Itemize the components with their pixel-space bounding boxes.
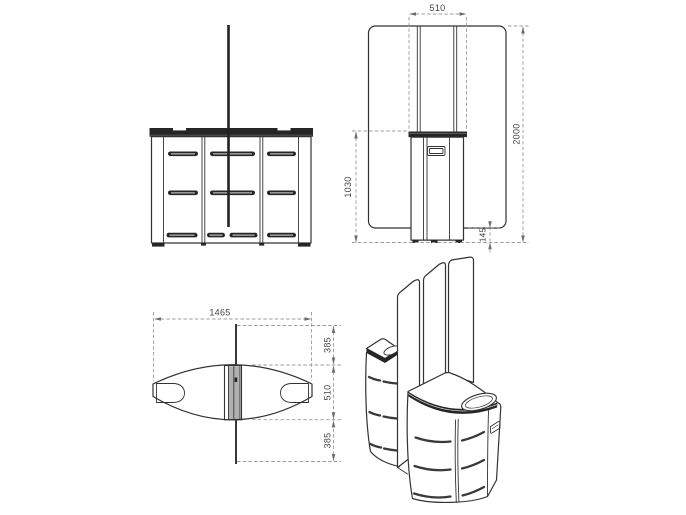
plan-view: 1465 385 510 385 xyxy=(153,308,341,465)
dim-label-side-total-height: 2000 xyxy=(512,123,522,144)
front-countertop-notch-right xyxy=(278,128,291,130)
plan-panel-band xyxy=(225,366,242,420)
iso-floor-gap-line xyxy=(398,468,408,475)
dim-label-side-counter-height: 1030 xyxy=(343,176,353,197)
technical-drawing-page: 510 2000 1030 145 xyxy=(0,0,686,515)
front-countertop-notch-left xyxy=(173,128,186,130)
isometric-view xyxy=(366,257,501,502)
plan-recess-left xyxy=(157,384,185,403)
dim-label-plan-front-extension: 385 xyxy=(323,433,333,449)
dim-label-plan-length: 1465 xyxy=(209,308,230,318)
dimension-plan-depth-chain: 385 510 385 xyxy=(237,326,341,462)
dim-label-plan-back-extension: 385 xyxy=(323,337,333,353)
iso-panel-medium xyxy=(424,263,446,386)
front-view xyxy=(150,25,314,247)
iso-back-cabinet xyxy=(366,339,402,467)
iso-panel-large xyxy=(449,257,474,382)
plan-recess-right xyxy=(281,384,309,403)
side-view: 510 2000 1030 145 xyxy=(343,3,529,253)
dim-label-side-panel-width: 510 xyxy=(430,3,446,13)
side-countertop-band xyxy=(409,132,468,138)
technical-drawing-canvas: 510 2000 1030 145 xyxy=(0,0,686,515)
dimension-side-total-height: 2000 xyxy=(508,26,529,243)
side-cabinet-body xyxy=(411,137,464,240)
dim-label-plan-counter-depth: 510 xyxy=(323,385,333,401)
dim-label-side-floor-gap: 145 xyxy=(478,228,487,242)
iso-front-cabinet xyxy=(407,373,501,503)
